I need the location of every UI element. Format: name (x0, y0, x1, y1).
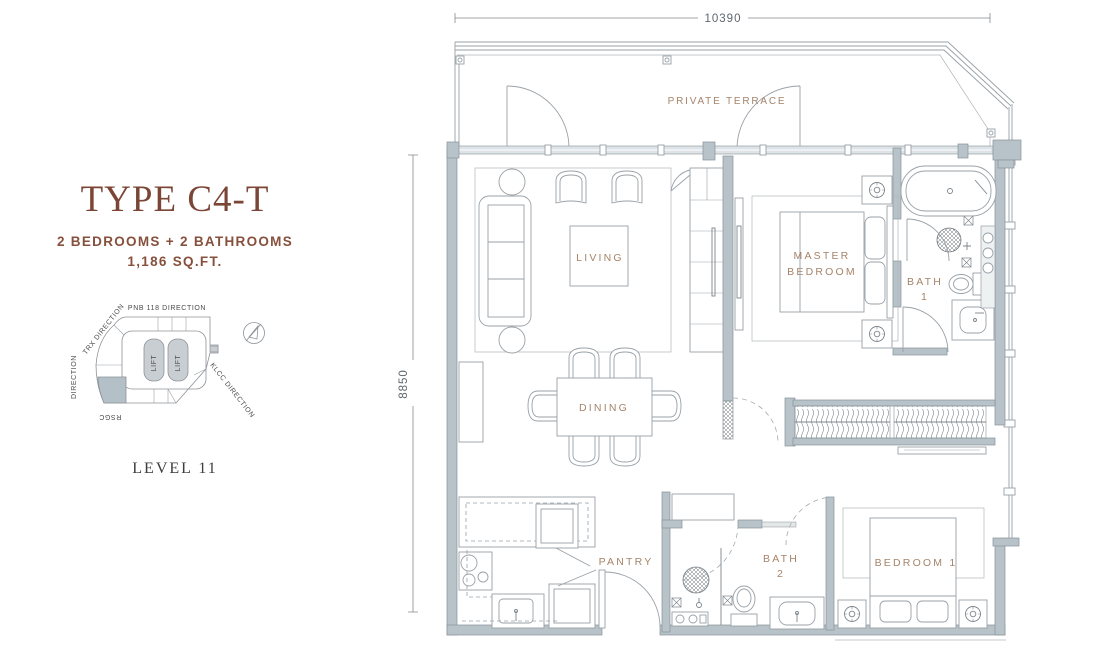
dimension-top-value: 10390 (705, 13, 742, 25)
master-label-2: BEDROOM (787, 266, 857, 278)
bath-2: BATH 2 (672, 494, 824, 629)
window-wall-top (457, 145, 993, 155)
vanity-sink (770, 597, 824, 629)
highlighted-unit (98, 377, 126, 403)
key-plan-lifts: LIFT LIFT (144, 339, 188, 381)
floor-trap-icon (964, 216, 973, 225)
dining-chair (610, 434, 640, 466)
info-panel: TYPE C4-T 2 BEDROOMS + 2 BATHROOMS 1,186… (10, 0, 340, 478)
keyplan-label-rsgc: RSGC (99, 413, 122, 420)
kitchen-sink (492, 594, 544, 628)
bathtub (901, 166, 996, 216)
nightstand (862, 176, 892, 204)
keyplan-label-trx: TRX DIRECTION (82, 303, 126, 356)
bedroom-1: BEDROOM 1 (838, 508, 987, 628)
bath2-label-2: 2 (777, 568, 785, 580)
bath1-door (903, 307, 948, 352)
dimension-left-value: 8850 (398, 369, 410, 399)
lift-label-2: LIFT (175, 354, 182, 371)
toilet (949, 273, 982, 295)
keyplan-label-klcc: KLCC DIRECTION (208, 362, 255, 420)
dining-chair (569, 434, 599, 466)
terrace-label: PRIVATE TERRACE (668, 96, 787, 107)
toilet (731, 586, 757, 626)
dining-chair (610, 348, 640, 380)
living-room: LIVING (475, 168, 723, 353)
cooktop (459, 552, 492, 590)
master-label-1: MASTER (794, 250, 851, 262)
bath1-label-2: 1 (921, 291, 929, 303)
bath-1: BATH 1 (901, 166, 996, 352)
nightstand (959, 600, 987, 628)
dimension-top: 10390 (455, 13, 990, 25)
master-tv-panel (735, 198, 743, 330)
pantry-label: PANTRY (599, 556, 654, 568)
lift-label-1: LIFT (151, 354, 158, 371)
bath1-shelf (981, 226, 995, 308)
dining-chair (528, 391, 560, 421)
sofa (479, 196, 531, 326)
niche-shelf (672, 494, 734, 520)
keyplan-label-direction: DIRECTION (71, 355, 78, 399)
master-bed (780, 206, 893, 318)
master-bedroom: MASTER BEDROOM (735, 176, 898, 348)
floor-plan: 10390 8850 PRIVATE TERRACE (380, 0, 1100, 650)
tv-console (671, 168, 723, 352)
sideboard (459, 362, 483, 442)
dining-chair (649, 391, 681, 421)
shower-mixer (697, 603, 702, 608)
dining-chair (569, 348, 599, 380)
page: TYPE C4-T 2 BEDROOMS + 2 BATHROOMS 1,186… (0, 0, 1100, 650)
nightstand (862, 320, 892, 348)
shower-mixer (963, 242, 971, 250)
bed (870, 518, 956, 628)
dining-label: DINING (579, 402, 629, 414)
plan-title: TYPE C4-T (10, 178, 340, 221)
compass-icon (244, 323, 265, 344)
plan-subtitle: 2 BEDROOMS + 2 BATHROOMS (10, 234, 340, 249)
private-terrace: PRIVATE TERRACE (455, 42, 1014, 148)
side-table (499, 327, 525, 353)
floor-trap-icon (672, 598, 681, 607)
floor-trap-icon (723, 596, 732, 605)
entry-door (599, 570, 660, 628)
fridge (549, 570, 596, 628)
armchair (556, 171, 586, 203)
living-label: LIVING (576, 252, 624, 264)
key-plan: LIFT LIFT PNB 118 DIRECTION TRX DIRECTIO… (60, 293, 290, 445)
pantry: PANTRY (459, 497, 653, 628)
shower-head (937, 228, 961, 252)
bedroom1-label: BEDROOM 1 (875, 557, 958, 569)
accessory-shelf (672, 612, 708, 626)
wardrobe (785, 398, 995, 454)
side-table (499, 169, 525, 195)
dining-area: DINING (459, 348, 681, 466)
plan-area: 1,186 SQ.FT. (10, 254, 340, 269)
dimension-left: 8850 (398, 155, 418, 612)
bath2-label-1: BATH (763, 553, 799, 565)
floor-trap-icon (962, 258, 971, 267)
bath1-label-1: BATH (907, 276, 943, 288)
keyplan-label-pnb: PNB 118 DIRECTION (128, 305, 206, 312)
level-label: LEVEL 11 (10, 460, 340, 478)
armchair (612, 171, 642, 203)
nightstand (838, 600, 866, 628)
